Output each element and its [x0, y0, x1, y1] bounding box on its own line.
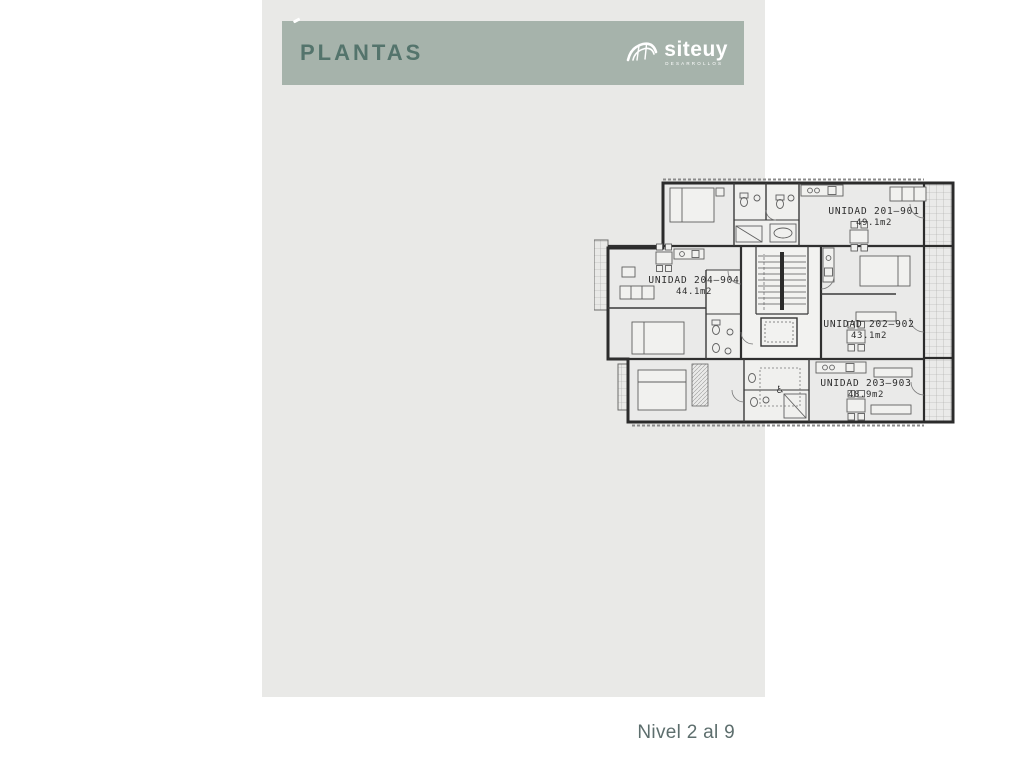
dome-icon — [625, 40, 659, 64]
unit-202-name: UNIDAD 202–902 — [823, 319, 914, 330]
floor-plan: ♿ — [594, 172, 974, 434]
page-title: PLANTAS — [300, 40, 423, 66]
content-panel: PLANTAS siteuy DESARROLLOS — [262, 0, 765, 697]
logo-wordmark: siteuy — [664, 39, 728, 60]
unit-203-name: UNIDAD 203–903 — [820, 378, 911, 389]
unit-203-area: 48.9m2 — [820, 390, 911, 400]
unit-201-area: 49.1m2 — [828, 218, 919, 228]
siteuy-logo: siteuy DESARROLLOS — [625, 39, 728, 67]
unit-204-name: UNIDAD 204–904 — [648, 275, 739, 286]
page: PLANTAS siteuy DESARROLLOS — [0, 0, 1024, 768]
unit-201-name: UNIDAD 201–901 — [828, 206, 919, 217]
unit-label-203: UNIDAD 203–903 48.9m2 — [820, 378, 911, 400]
footer: Nivel 2 al 9 — [262, 697, 765, 768]
level-label: Nivel 2 al 9 — [637, 722, 735, 744]
wheelchair-icon: ♿ — [776, 385, 785, 396]
logo-text: siteuy DESARROLLOS — [664, 39, 728, 67]
logo-tagline: DESARROLLOS — [665, 62, 728, 67]
unit-label-202: UNIDAD 202–902 43.1m2 — [823, 319, 914, 341]
header-bar: PLANTAS siteuy DESARROLLOS — [282, 21, 744, 85]
unit-label-204: UNIDAD 204–904 44.1m2 — [648, 275, 739, 297]
unit-204-area: 44.1m2 — [648, 287, 739, 297]
logo-accent — [293, 18, 300, 23]
unit-202-area: 43.1m2 — [823, 331, 914, 341]
unit-label-201: UNIDAD 201–901 49.1m2 — [828, 206, 919, 228]
